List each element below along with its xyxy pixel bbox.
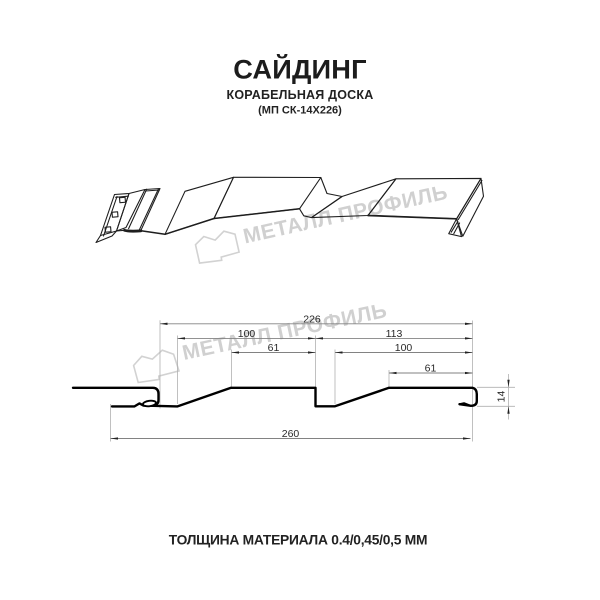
- svg-text:100: 100: [238, 328, 256, 340]
- svg-text:САЙДИНГ: САЙДИНГ: [233, 53, 367, 85]
- svg-text:61: 61: [425, 363, 437, 375]
- svg-text:(МП СК-14Х226): (МП СК-14Х226): [258, 105, 342, 117]
- svg-text:260: 260: [282, 428, 300, 440]
- svg-text:КОРАБЕЛЬНАЯ ДОСКА: КОРАБЕЛЬНАЯ ДОСКА: [227, 88, 374, 102]
- svg-text:100: 100: [395, 342, 413, 354]
- svg-text:14: 14: [495, 391, 507, 403]
- svg-text:113: 113: [386, 328, 403, 340]
- svg-text:ТОЛЩИНА МАТЕРИАЛА 0.4/0,45/0,5: ТОЛЩИНА МАТЕРИАЛА 0.4/0,45/0,5 ММ: [169, 533, 427, 548]
- svg-text:МЕТАЛЛ ПРОФИЛЬ: МЕТАЛЛ ПРОФИЛЬ: [180, 299, 389, 365]
- svg-text:61: 61: [268, 342, 280, 354]
- svg-text:226: 226: [303, 313, 321, 325]
